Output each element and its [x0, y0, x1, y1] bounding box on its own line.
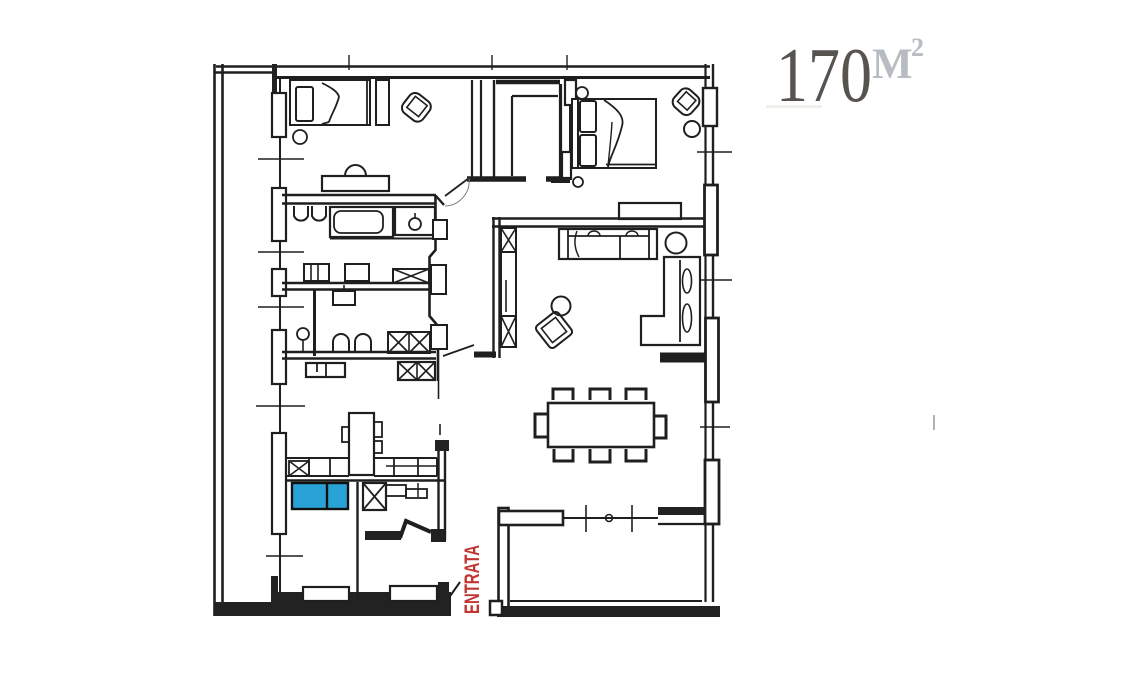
svg-text:2: 2 — [911, 33, 924, 62]
svg-text:M: M — [872, 41, 913, 88]
svg-text:ENTRATA: ENTRATA — [461, 545, 484, 614]
